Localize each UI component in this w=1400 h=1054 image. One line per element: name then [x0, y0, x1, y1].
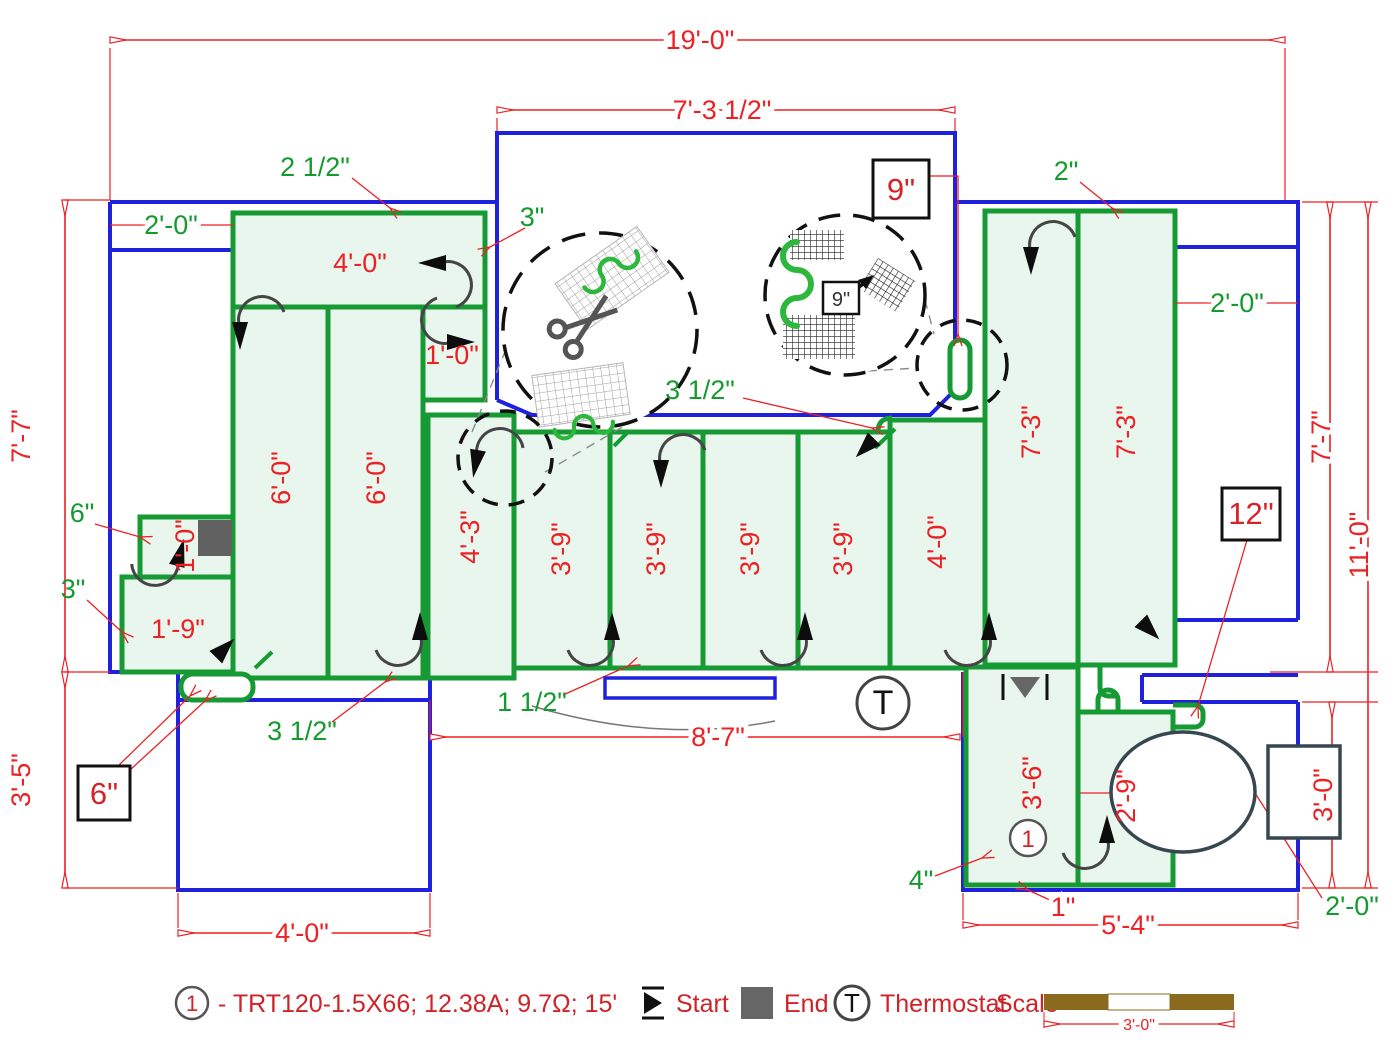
- wire-loop: [181, 674, 253, 700]
- dim-hall: 8'-7": [691, 722, 745, 752]
- legend-mat-spec: - TRT120-1.5X66; 12.38A; 9.7Ω; 15': [218, 990, 617, 1018]
- callout-9in-label: 9": [887, 172, 915, 207]
- mat-label: 4'-3": [455, 510, 485, 564]
- dim-right-lower: 3'-0": [1308, 768, 1338, 822]
- dim-overall-width: 19'-0": [666, 25, 735, 55]
- callout-6in: 6": [78, 766, 130, 820]
- mat-label: 2'-9": [1111, 769, 1141, 823]
- thermostat-symbol: T: [857, 677, 909, 729]
- callout-9in: 9": [873, 160, 929, 218]
- dim-right-total: 11'-0": [1344, 512, 1374, 579]
- dim-bath: 5'-4": [1101, 910, 1155, 940]
- callout-12in: 12": [1222, 488, 1280, 540]
- mat-label: 3'-9": [735, 522, 765, 576]
- mesh-patch-icon: [783, 315, 855, 359]
- legend: 1 - TRT120-1.5X66; 12.38A; 9.7Ω; 15' Sta…: [176, 986, 1234, 1034]
- mat-label: 3'-9": [828, 522, 858, 576]
- thermostat-symbol-letter: T: [873, 684, 894, 722]
- mat-label: 3'-9": [546, 522, 576, 576]
- scale-bar: 3'-0": [1044, 994, 1234, 1034]
- dim-left-upper: 7'-7": [6, 409, 36, 463]
- dim-right-upper: 7'-7": [1306, 410, 1336, 464]
- callout-6in-label: 6": [90, 776, 118, 811]
- offset-label: 1 1/2": [497, 687, 567, 717]
- offset-label: 2 1/2": [280, 152, 350, 182]
- detail-circle-cut: [503, 226, 697, 441]
- detail-circle-offset: 9": [765, 215, 925, 375]
- mat-label: 1'-0": [170, 519, 200, 573]
- dim-top-room: 7'-3 1/2": [673, 95, 772, 125]
- mat-label: 3'-6": [1017, 756, 1047, 810]
- offset-label: 6": [70, 498, 95, 528]
- dim-1in: 1": [1051, 892, 1076, 922]
- mat-label: 6'-0": [361, 451, 391, 505]
- offset-label: 3 1/2": [665, 375, 735, 405]
- mat-label: 6'-0": [266, 451, 296, 505]
- scale-length: 3'-0": [1123, 1017, 1155, 1034]
- mat-label: 1'-0": [425, 340, 479, 370]
- legend-thermostat-label: Thermostat: [880, 990, 1006, 1018]
- detail-9in-label: 9": [832, 289, 850, 311]
- mat-label: 3'-9": [641, 522, 671, 576]
- offset-label: 2'-0": [144, 210, 198, 240]
- mat-number: 1: [1021, 826, 1034, 853]
- callout-12in-label: 12": [1228, 496, 1274, 531]
- plan-canvas: 9" T 1: [0, 0, 1400, 1049]
- offset-label: 3": [520, 202, 545, 232]
- mat-label: 7'-3": [1016, 405, 1046, 459]
- offset-label: 3": [61, 574, 86, 604]
- end-symbol-square: [198, 520, 232, 556]
- offset-label: 2'-0": [1210, 288, 1264, 318]
- wire-tab: [1173, 705, 1203, 727]
- legend-start-label: Start: [676, 990, 729, 1018]
- offset-label: 2'-0": [1325, 891, 1379, 921]
- legend-mat-number: 1: [186, 991, 198, 1016]
- wire-start-pill: [950, 340, 970, 398]
- offset-label: 2": [1054, 156, 1079, 186]
- end-icon: [741, 987, 773, 1019]
- mat-label: 4'-0": [333, 248, 387, 278]
- mat-label: 1'-9": [151, 614, 205, 644]
- start-icon: [642, 988, 664, 1018]
- dim-left-lower: 3'-5": [6, 753, 36, 807]
- legend-thermostat-letter: T: [844, 988, 860, 1018]
- mesh-patch-icon: [790, 230, 844, 260]
- legend-end-label: End: [784, 990, 828, 1018]
- offset-label: 4": [909, 865, 934, 895]
- mat-label: 4'-0": [922, 515, 952, 569]
- dim-room-bl: 4'-0": [275, 918, 329, 948]
- floor-heating-plan: 9" T 1: [0, 0, 1400, 1049]
- mat-label: 7'-3": [1111, 405, 1141, 459]
- toilet: [1111, 732, 1340, 852]
- offset-label: 3 1/2": [267, 716, 337, 746]
- mat-number-circle: 1: [1010, 820, 1046, 856]
